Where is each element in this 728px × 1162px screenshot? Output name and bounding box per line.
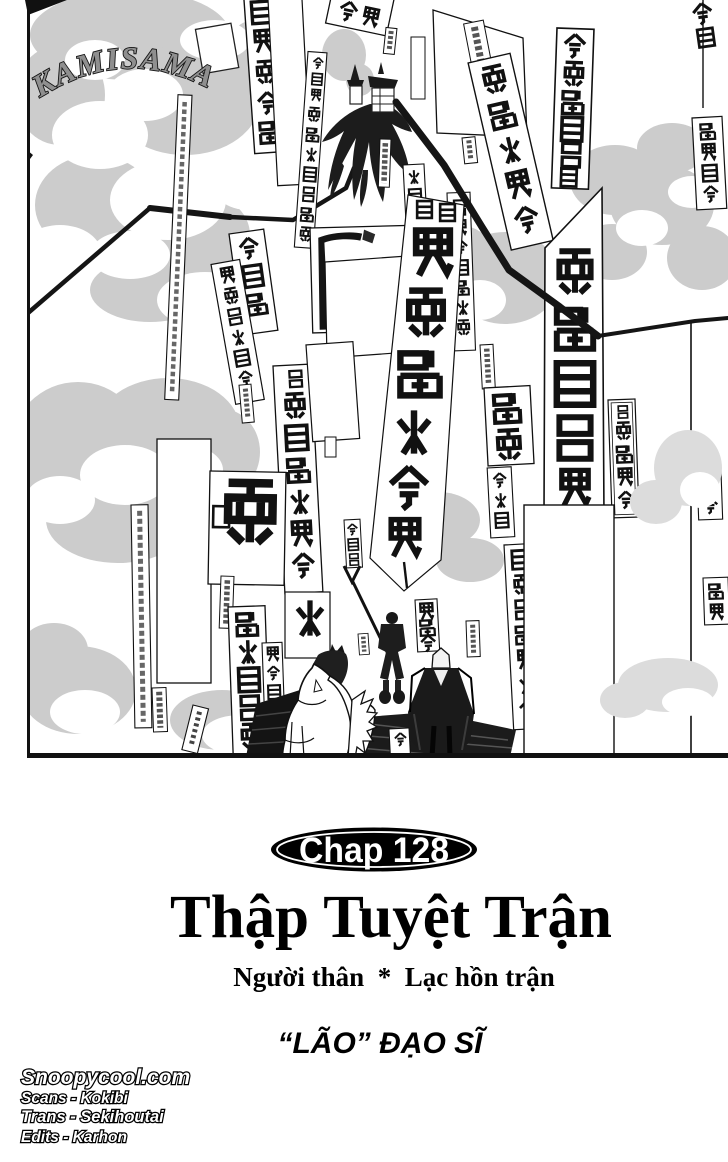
svg-text:Chap 128: Chap 128	[299, 831, 449, 870]
